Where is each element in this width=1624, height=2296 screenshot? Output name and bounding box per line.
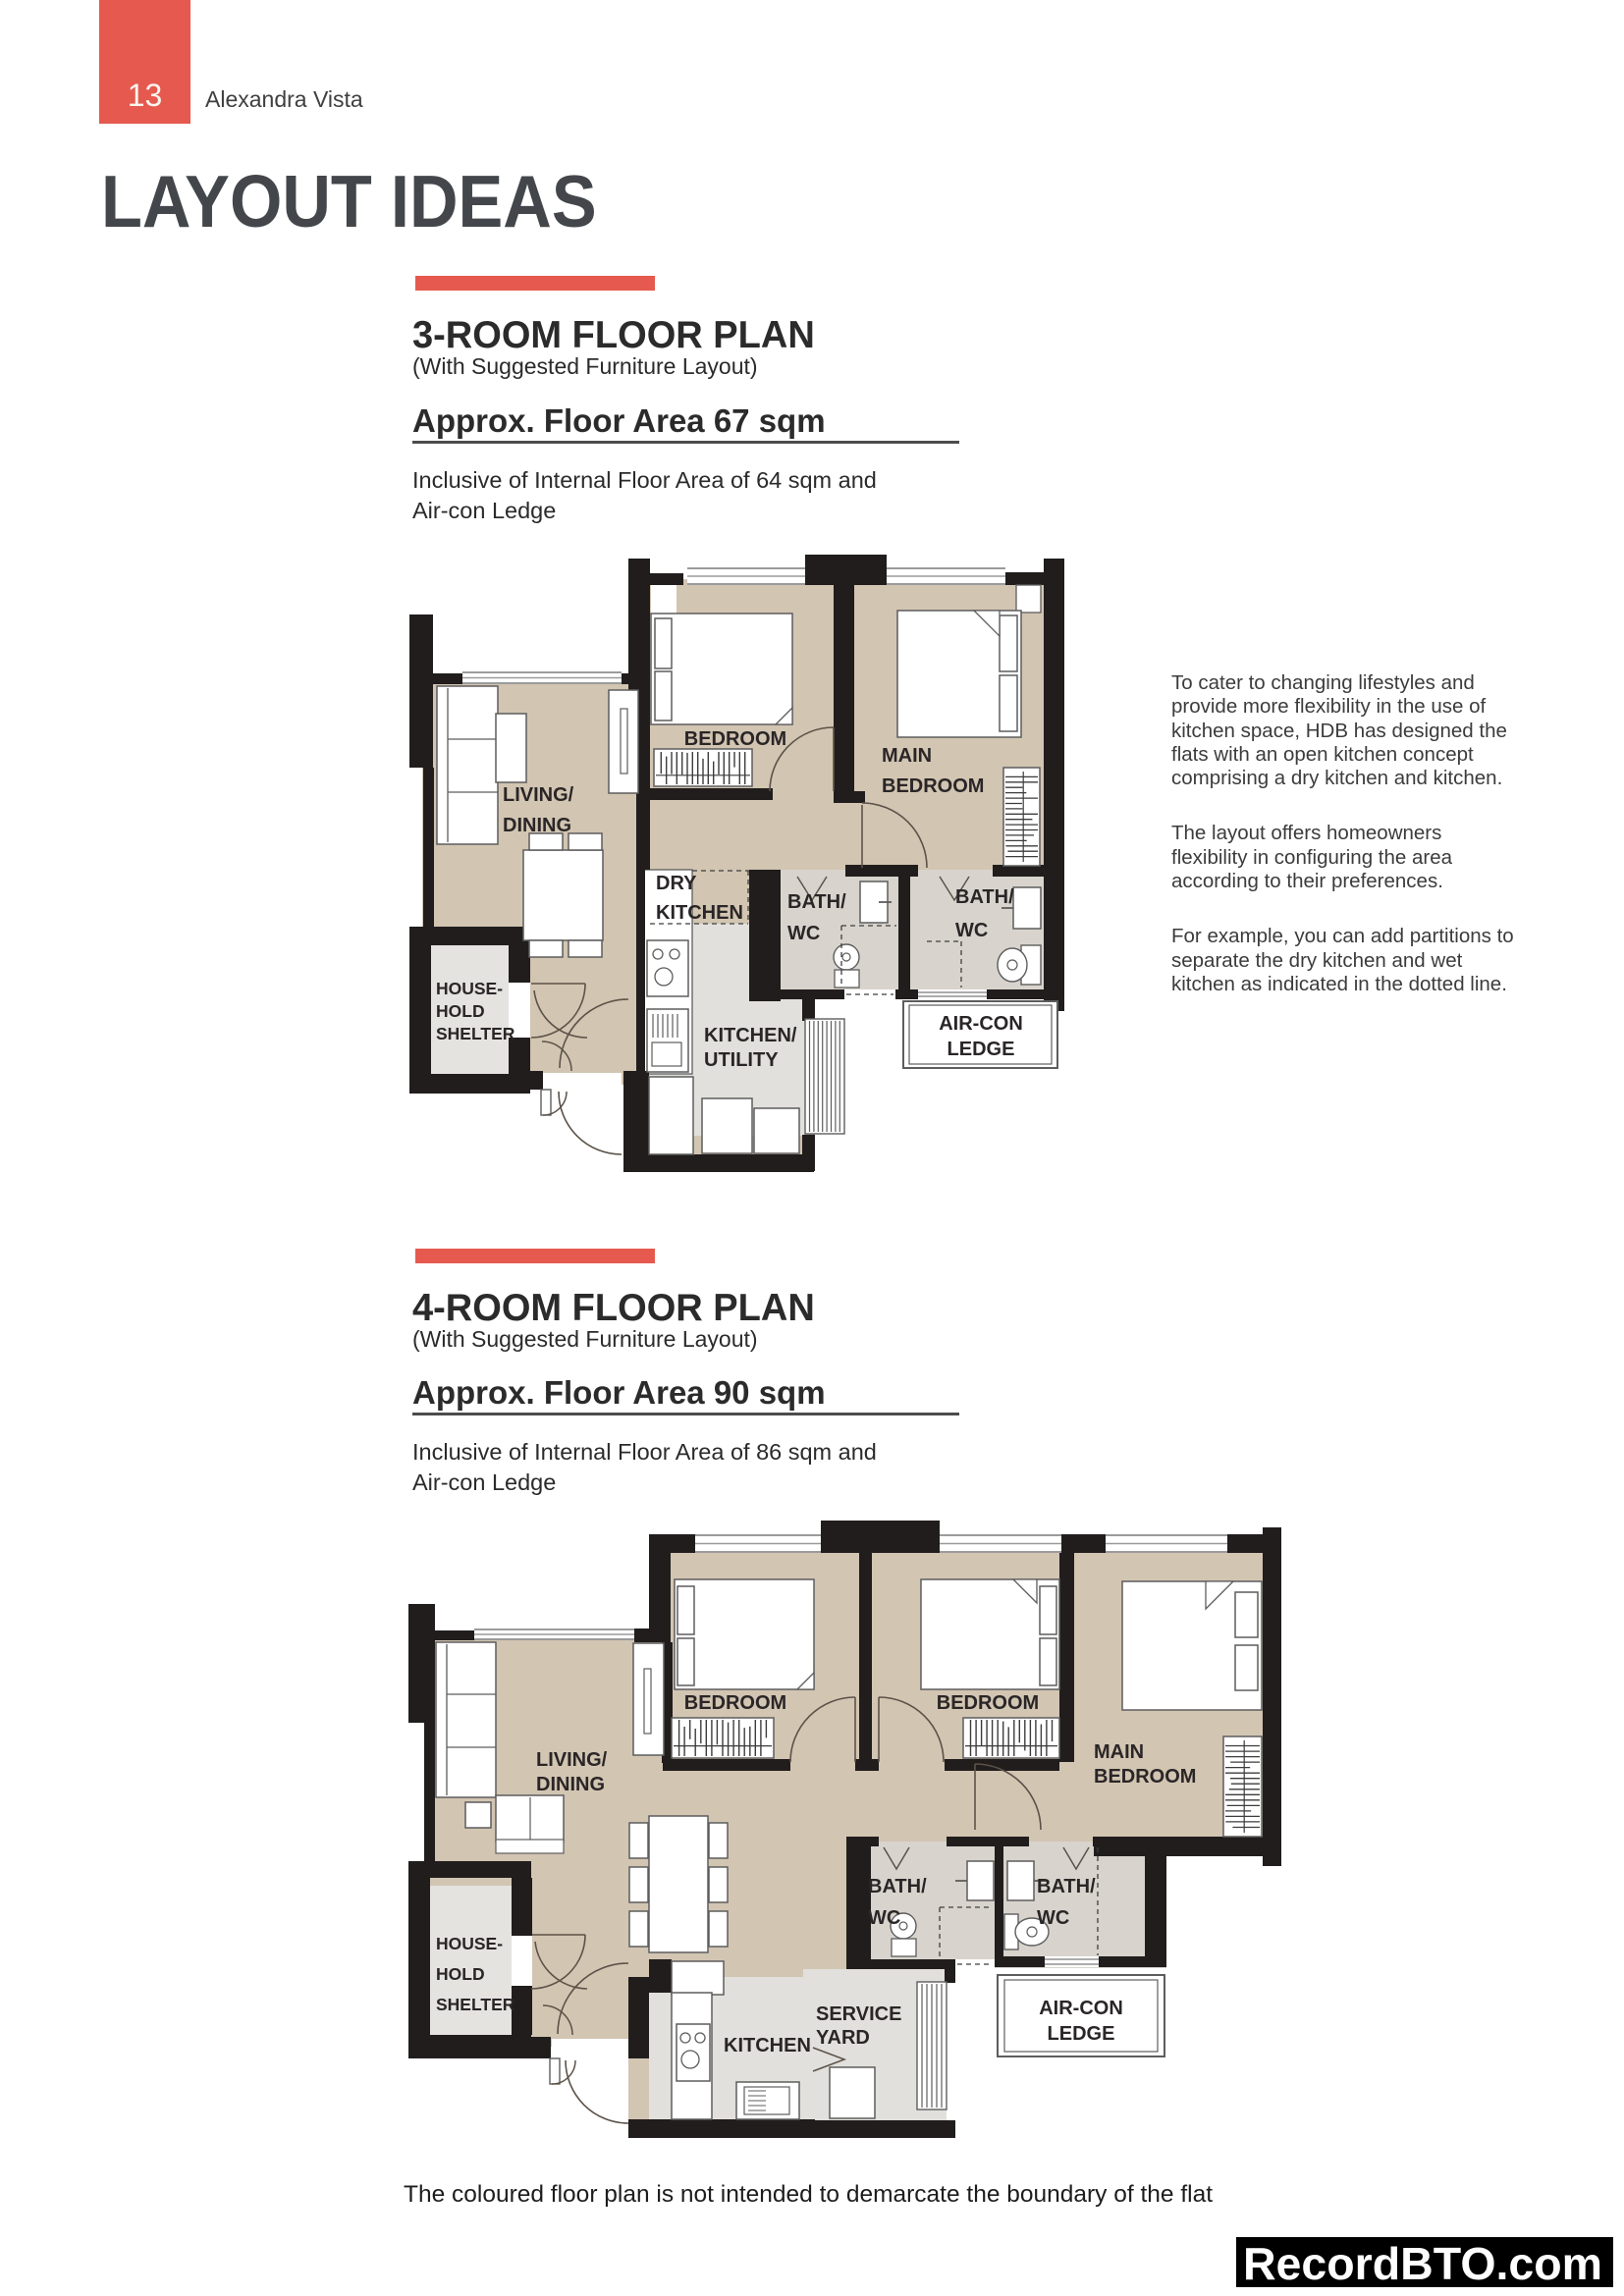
- svg-text:DINING: DINING: [503, 815, 571, 836]
- svg-text:YARD: YARD: [816, 2027, 870, 2049]
- svg-text:BEDROOM: BEDROOM: [1094, 1766, 1196, 1788]
- svg-text:BATH/: BATH/: [787, 891, 846, 913]
- svg-text:WC: WC: [868, 1907, 900, 1929]
- svg-text:BEDROOM: BEDROOM: [937, 1692, 1039, 1714]
- svg-text:SHELTER: SHELTER: [436, 1024, 515, 1043]
- svg-text:MAIN: MAIN: [882, 745, 932, 767]
- svg-text:BEDROOM: BEDROOM: [882, 775, 984, 797]
- svg-text:DINING: DINING: [536, 1774, 605, 1795]
- svg-text:HOLD: HOLD: [436, 1001, 485, 1021]
- svg-text:LEDGE: LEDGE: [1048, 2023, 1115, 2045]
- svg-text:WC: WC: [787, 923, 820, 944]
- svg-text:BATH/: BATH/: [1037, 1876, 1096, 1897]
- svg-text:HOUSE-: HOUSE-: [436, 1934, 503, 1953]
- svg-text:KITCHEN: KITCHEN: [656, 902, 743, 924]
- svg-text:HOUSE-: HOUSE-: [436, 979, 503, 998]
- svg-text:LEDGE: LEDGE: [947, 1039, 1015, 1060]
- svg-text:BEDROOM: BEDROOM: [684, 1692, 786, 1714]
- svg-text:UTILITY: UTILITY: [704, 1049, 779, 1071]
- svg-text:KITCHEN: KITCHEN: [724, 2035, 811, 2056]
- svg-text:KITCHEN/: KITCHEN/: [704, 1025, 797, 1046]
- svg-text:SHELTER: SHELTER: [436, 1995, 515, 2014]
- svg-text:MAIN: MAIN: [1094, 1741, 1144, 1763]
- svg-text:SERVICE: SERVICE: [816, 2003, 901, 2025]
- svg-text:LIVING/: LIVING/: [503, 784, 574, 806]
- svg-text:WC: WC: [955, 920, 988, 941]
- svg-text:LIVING/: LIVING/: [536, 1749, 608, 1771]
- svg-text:HOLD: HOLD: [436, 1964, 485, 1984]
- svg-text:WC: WC: [1037, 1907, 1069, 1929]
- svg-text:AIR-CON: AIR-CON: [939, 1013, 1023, 1035]
- svg-text:BATH/: BATH/: [955, 886, 1014, 908]
- svg-text:BEDROOM: BEDROOM: [684, 728, 786, 750]
- svg-text:AIR-CON: AIR-CON: [1039, 1998, 1123, 2019]
- svg-text:DRY: DRY: [656, 873, 697, 894]
- svg-text:BATH/: BATH/: [868, 1876, 927, 1897]
